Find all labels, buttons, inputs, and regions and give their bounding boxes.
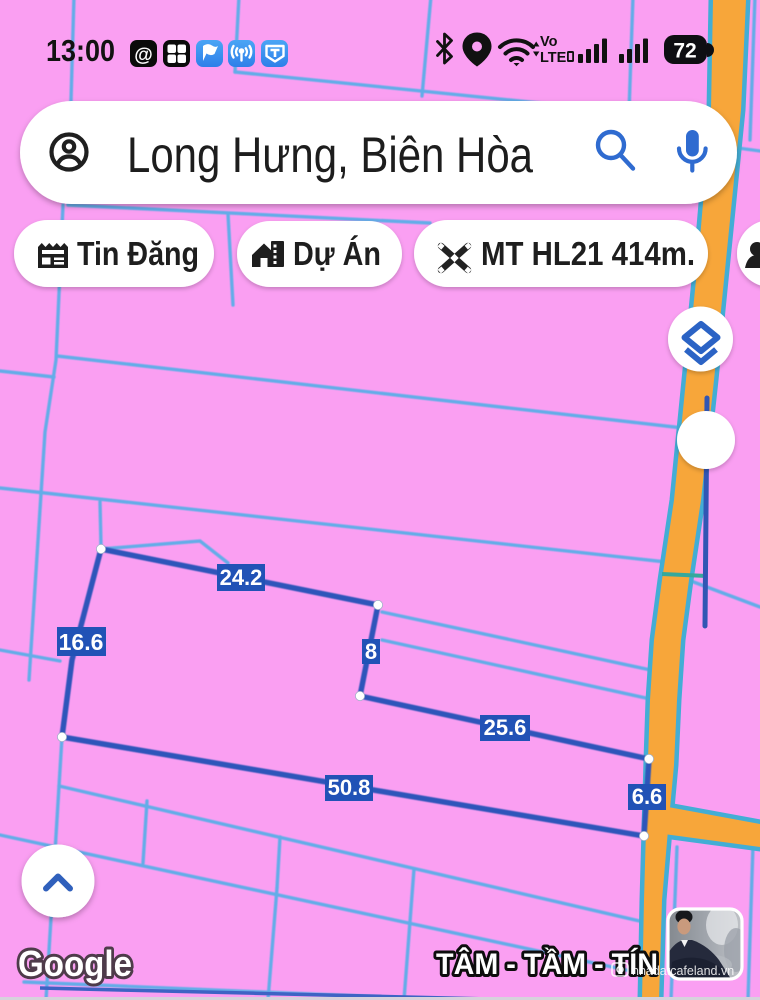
svg-text:6.6: 6.6	[632, 784, 663, 809]
svg-text:24.2: 24.2	[220, 565, 263, 590]
svg-text:Vo: Vo	[540, 34, 558, 50]
svg-text:8: 8	[365, 639, 377, 664]
svg-text:LTE: LTE	[540, 50, 567, 66]
svg-text:50.8: 50.8	[328, 775, 371, 800]
svg-text:Google: Google	[18, 943, 132, 984]
svg-text:nhadatcafeland.vn: nhadatcafeland.vn	[632, 964, 734, 978]
svg-text:16.6: 16.6	[59, 629, 104, 655]
svg-text:MT HL21 414m.: MT HL21 414m.	[481, 235, 695, 272]
svg-text:@: @	[134, 45, 153, 66]
svg-text:Tin Đăng: Tin Đăng	[77, 235, 199, 272]
svg-text:72: 72	[673, 40, 696, 63]
svg-text:13:00: 13:00	[46, 33, 115, 68]
svg-text:Long Hưng, Biên Hòa: Long Hưng, Biên Hòa	[127, 127, 533, 183]
svg-text:Dự Án: Dự Án	[293, 235, 381, 272]
svg-text:25.6: 25.6	[484, 715, 527, 740]
